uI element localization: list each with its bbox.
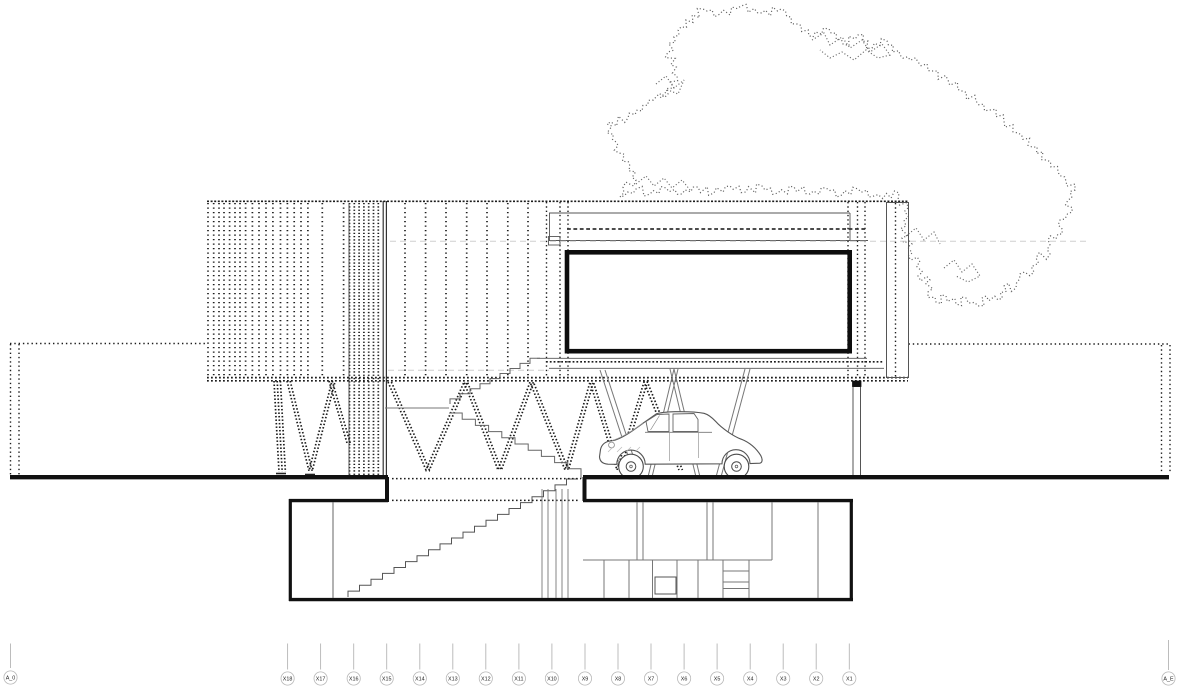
svg-text:X3: X3 [780, 676, 787, 682]
svg-text:X16: X16 [349, 676, 359, 682]
svg-text:X9: X9 [582, 676, 589, 682]
svg-text:X2: X2 [813, 676, 820, 682]
svg-text:A_0: A_0 [6, 675, 16, 681]
svg-text:X12: X12 [481, 676, 491, 682]
svg-text:A_E: A_E [1163, 676, 1174, 682]
svg-text:X7: X7 [648, 676, 655, 682]
svg-text:X8: X8 [615, 676, 622, 682]
svg-text:X14: X14 [415, 676, 425, 682]
svg-text:X1: X1 [846, 676, 853, 682]
svg-text:X10: X10 [547, 676, 557, 682]
svg-text:X5: X5 [714, 676, 721, 682]
svg-text:X18: X18 [283, 676, 293, 682]
svg-text:X11: X11 [514, 676, 523, 682]
svg-text:X15: X15 [382, 676, 392, 682]
svg-text:X6: X6 [681, 676, 688, 682]
svg-text:X13: X13 [448, 676, 458, 682]
svg-text:X4: X4 [747, 676, 754, 682]
svg-text:X17: X17 [316, 676, 326, 682]
